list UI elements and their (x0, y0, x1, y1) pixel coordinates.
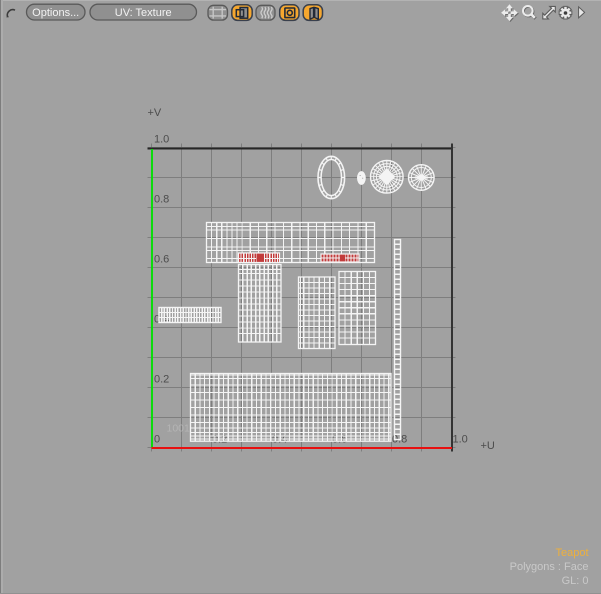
svg-text:UV: Texture: UV: Texture (115, 7, 172, 19)
svg-text:0.6: 0.6 (154, 254, 169, 266)
svg-text:0: 0 (154, 434, 160, 446)
svg-text:+V: +V (148, 107, 162, 119)
svg-text:1.0: 1.0 (154, 134, 169, 146)
svg-text:1.0: 1.0 (453, 434, 468, 446)
svg-text:Polygons : Face: Polygons : Face (510, 561, 589, 573)
svg-text:1001: 1001 (167, 423, 191, 435)
svg-text:0.8: 0.8 (154, 194, 169, 206)
svg-text:0.2: 0.2 (154, 374, 169, 386)
svg-text:Options...: Options... (32, 7, 79, 19)
svg-text:GL: 0: GL: 0 (562, 575, 589, 587)
svg-text:+U: +U (481, 440, 495, 452)
svg-text:Teapot: Teapot (555, 547, 588, 559)
